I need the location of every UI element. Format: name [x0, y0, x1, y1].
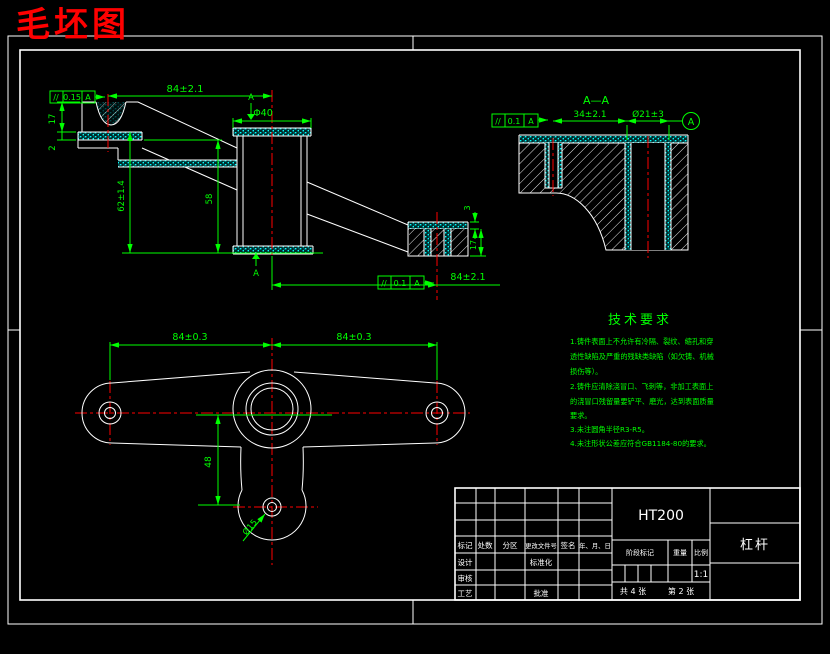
sheet-total: 共 4 张 — [620, 587, 646, 596]
col-date: 年、月、日 — [579, 541, 610, 550]
col-zone: 分区 — [503, 541, 518, 550]
dim-height-outer: 62±1.4 — [117, 180, 127, 211]
dim-plan-height: 48 — [204, 456, 214, 468]
cad-viewport: 毛坯图 — [0, 0, 830, 654]
scale-value: 1:1 — [694, 570, 708, 580]
tol-value: 0.1 — [508, 117, 521, 126]
dim-right-allowance: 3 — [463, 205, 472, 210]
dim-boss-diameter: Φ40 — [253, 108, 273, 119]
tol-value: 0.1 — [394, 279, 407, 288]
dim-section-width: 34±2.1 — [573, 110, 606, 120]
tech-req-line: 2.铸件应清除浇冒口、飞刺等，非加工表面上 — [570, 382, 713, 391]
col-count: 处数 — [478, 540, 493, 550]
part-name: 杠杆 — [740, 537, 770, 553]
tol-symbol: // — [495, 117, 501, 126]
tol-datum: A — [414, 279, 420, 288]
section-label: A—A — [583, 94, 610, 107]
dim-section-hole: Ø21±3 — [632, 109, 664, 120]
tech-req-line: 的浇冒口残留量要铲平、磨光，达到表面质量 — [570, 397, 714, 406]
dim-height-inner: 58 — [205, 194, 215, 205]
tech-req-line: 1.铸件表面上不允许有冷隔、裂纹、缩孔和穿 — [570, 337, 713, 346]
dim-left-allowance: 2 — [48, 145, 58, 150]
row-check: 审核 — [458, 573, 473, 583]
dim-plan-right: 84±0.3 — [336, 332, 371, 343]
svg-text:A: A — [248, 93, 254, 103]
tech-req-line: 透性缺陷及严重的残缺类缺陷（如欠铸、机械 — [570, 352, 714, 361]
dim-span-bottom: 84±2.1 — [450, 272, 485, 283]
field-weight: 重量 — [673, 549, 687, 557]
tech-req-line: 3.未注圆角半径R3-R5。 — [570, 425, 649, 434]
tol-symbol: // — [53, 93, 59, 102]
dim-span-top: 84±2.1 — [166, 84, 203, 95]
sheet-index: 第 2 张 — [668, 586, 694, 596]
row-process: 工艺 — [458, 589, 473, 598]
col-mark: 标记 — [458, 540, 473, 550]
dim-right-height: 17 — [469, 240, 478, 250]
tol-symbol: // — [381, 279, 387, 288]
field-scale: 比例 — [694, 548, 708, 557]
svg-text:A: A — [688, 117, 695, 128]
tech-requirements-title: 技术要求 — [608, 313, 672, 328]
cad-drawing: 毛坯图 — [0, 0, 830, 654]
dim-left-height: 17 — [48, 114, 58, 125]
row-design: 设计 — [458, 557, 473, 567]
material-value: HT200 — [638, 508, 684, 524]
tol-value: 0.15 — [63, 93, 81, 102]
tol-datum: A — [85, 93, 91, 102]
tech-req-line: 损伤等）。 — [570, 367, 602, 376]
col-sign: 签名 — [561, 540, 576, 550]
dim-plan-left: 84±0.3 — [172, 332, 207, 343]
field-stage: 阶段标记 — [626, 548, 654, 557]
page-title: 毛坯图 — [16, 5, 130, 45]
tech-req-line: 4.未注形状公差应符合GB1184-80的要求。 — [570, 439, 711, 448]
row-standardize: 标准化 — [530, 557, 553, 567]
svg-text:A: A — [253, 269, 259, 279]
row-approve: 批准 — [534, 588, 549, 598]
tol-datum: A — [528, 117, 534, 126]
tech-req-line: 要求。 — [570, 411, 592, 420]
col-change-file: 更改文件号 — [525, 541, 556, 550]
